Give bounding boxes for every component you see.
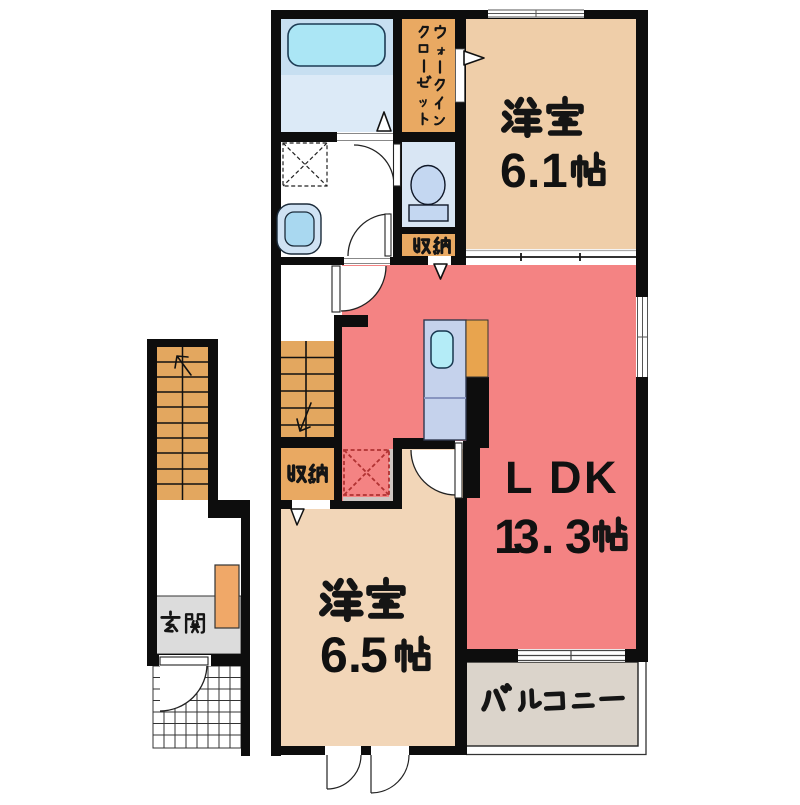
- svg-text:6: 6: [320, 627, 348, 683]
- svg-text:.: .: [541, 511, 554, 564]
- svg-text:6: 6: [500, 145, 527, 198]
- svg-text:3: 3: [513, 511, 540, 564]
- svg-text:3: 3: [565, 511, 592, 564]
- svg-text:5: 5: [360, 627, 388, 683]
- svg-text:L: L: [505, 452, 533, 503]
- svg-text:1: 1: [541, 145, 568, 198]
- svg-text:D: D: [549, 452, 582, 503]
- svg-text:.: .: [527, 145, 540, 198]
- svg-text:K: K: [584, 452, 617, 503]
